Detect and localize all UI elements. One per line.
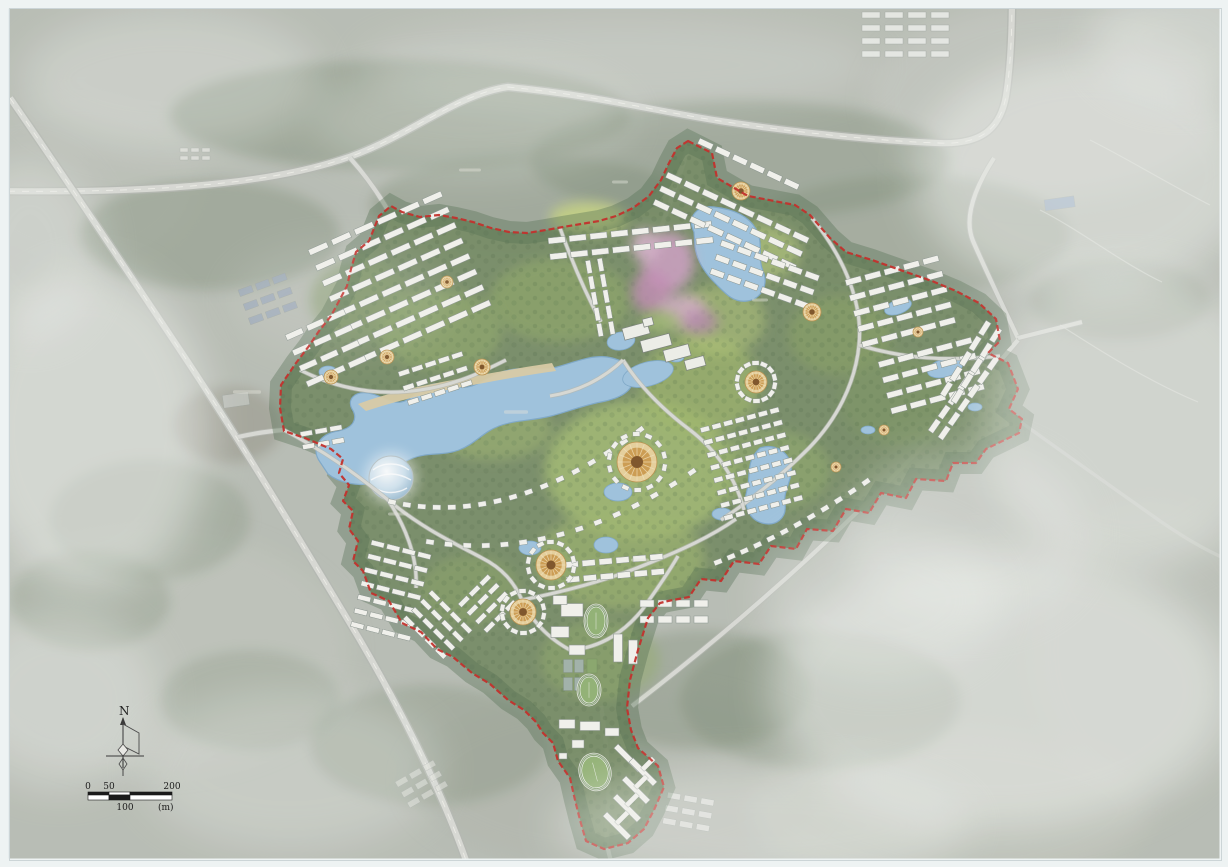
masterplan-aerial-rendering: N 0 50 200 100 (m) [0,0,1228,867]
north-label: N [119,704,130,718]
scale-unit: (m) [158,802,174,813]
scale-tick-100: 100 [116,803,133,813]
fog-haze-overlay [0,0,1228,867]
scale-tick-0: 0 [85,782,91,792]
scale-tick-50: 50 [103,782,115,792]
masterplan-sheet: N 0 50 200 100 (m) [0,0,1228,867]
scale-bar-segments [88,792,172,800]
scale-tick-200: 200 [163,782,180,792]
